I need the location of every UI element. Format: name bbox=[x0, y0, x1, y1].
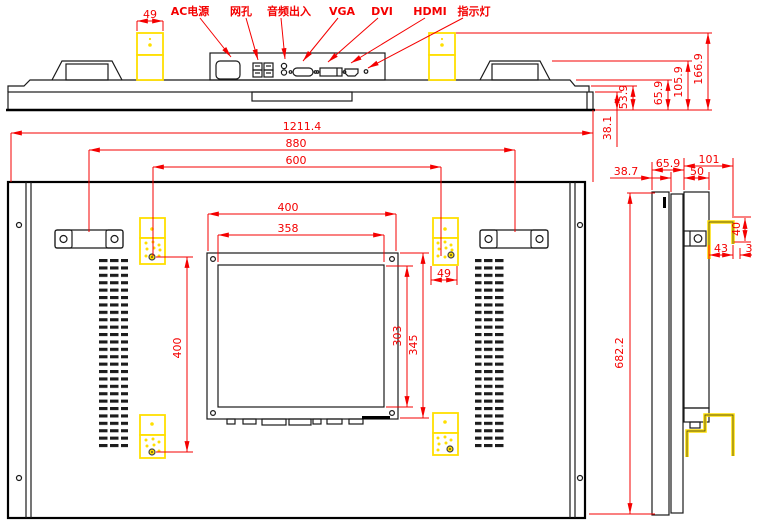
top-handle-left bbox=[52, 61, 122, 80]
dim-handle-height: 105.9 bbox=[672, 66, 685, 98]
side-panel-slab bbox=[652, 192, 669, 515]
top-view bbox=[6, 33, 595, 110]
dim-bracket-width-rear: 49 bbox=[437, 267, 451, 280]
mount-bracket-upper-right bbox=[433, 218, 458, 265]
vent-grille-right bbox=[475, 256, 506, 450]
top-bracket-left-highlight bbox=[137, 33, 163, 80]
dim-box-depth: 50 bbox=[690, 165, 704, 178]
dim-handle-span: 880 bbox=[286, 137, 307, 150]
dim-panel-width: 400 bbox=[278, 201, 299, 214]
dim-body-depth-side: 65.9 bbox=[656, 157, 681, 170]
label-vga: VGA bbox=[329, 5, 356, 18]
indicator-led bbox=[364, 70, 368, 74]
wall-hook-bottom bbox=[687, 415, 733, 457]
lan-ports bbox=[253, 63, 273, 77]
dim-bezel: 38.1 bbox=[601, 116, 614, 141]
drawing-layer: AC电源 网孔 音频出入 VGA DVI HDMI 指示灯 49 53.9 65… bbox=[0, 0, 758, 525]
dim-overall-height: 682.2 bbox=[613, 337, 626, 369]
dim-front-depth: 38.7 bbox=[614, 165, 639, 178]
vent-grille-left bbox=[97, 256, 128, 450]
dim-bracket-top: 166.9 bbox=[692, 53, 705, 85]
dim-panel-height: 345 bbox=[407, 335, 420, 356]
side-handle bbox=[684, 231, 706, 246]
dim-step: 53.9 bbox=[617, 85, 630, 110]
top-handle-right bbox=[480, 61, 550, 80]
side-view bbox=[652, 192, 733, 515]
dim-bracket-width-top: 49 bbox=[143, 8, 157, 21]
dvi-connector bbox=[316, 68, 346, 76]
dim-mount-span-v: 400 bbox=[171, 338, 184, 359]
audio-jacks bbox=[281, 63, 286, 75]
top-bracket-right-highlight bbox=[429, 33, 455, 80]
side-rear-cover bbox=[671, 194, 683, 513]
dim-panel-inner-height: 303 bbox=[391, 326, 404, 347]
dim-mount-span-h: 600 bbox=[286, 154, 307, 167]
label-lan: 网孔 bbox=[230, 5, 252, 18]
dim-panel-inner-width: 358 bbox=[278, 222, 299, 235]
label-dvi: DVI bbox=[371, 5, 393, 18]
hdmi-connector bbox=[345, 69, 358, 76]
engineering-drawing: AC电源 网孔 音频出入 VGA DVI HDMI 指示灯 49 53.9 65… bbox=[0, 0, 758, 525]
dim-hook-height: 40 bbox=[730, 222, 743, 236]
dim-hook-depth: 43 bbox=[714, 242, 728, 255]
dim-overall-width: 1211.4 bbox=[283, 120, 322, 133]
label-audio-io: 音频出入 bbox=[267, 4, 311, 18]
vga-connector bbox=[289, 68, 317, 76]
dim-hook-gap: 3 bbox=[746, 242, 753, 255]
label-hdmi: HDMI bbox=[413, 5, 446, 18]
label-indicator: 指示灯 bbox=[458, 4, 491, 18]
mount-bracket-lower-right bbox=[433, 413, 458, 455]
ac-inlet bbox=[216, 61, 240, 79]
label-ac-power: AC电源 bbox=[171, 4, 210, 18]
top-view-tab bbox=[252, 92, 352, 101]
dim-body-depth-top: 65.9 bbox=[652, 81, 665, 106]
top-view-body bbox=[8, 80, 589, 92]
side-mount-box-upper bbox=[684, 192, 709, 408]
